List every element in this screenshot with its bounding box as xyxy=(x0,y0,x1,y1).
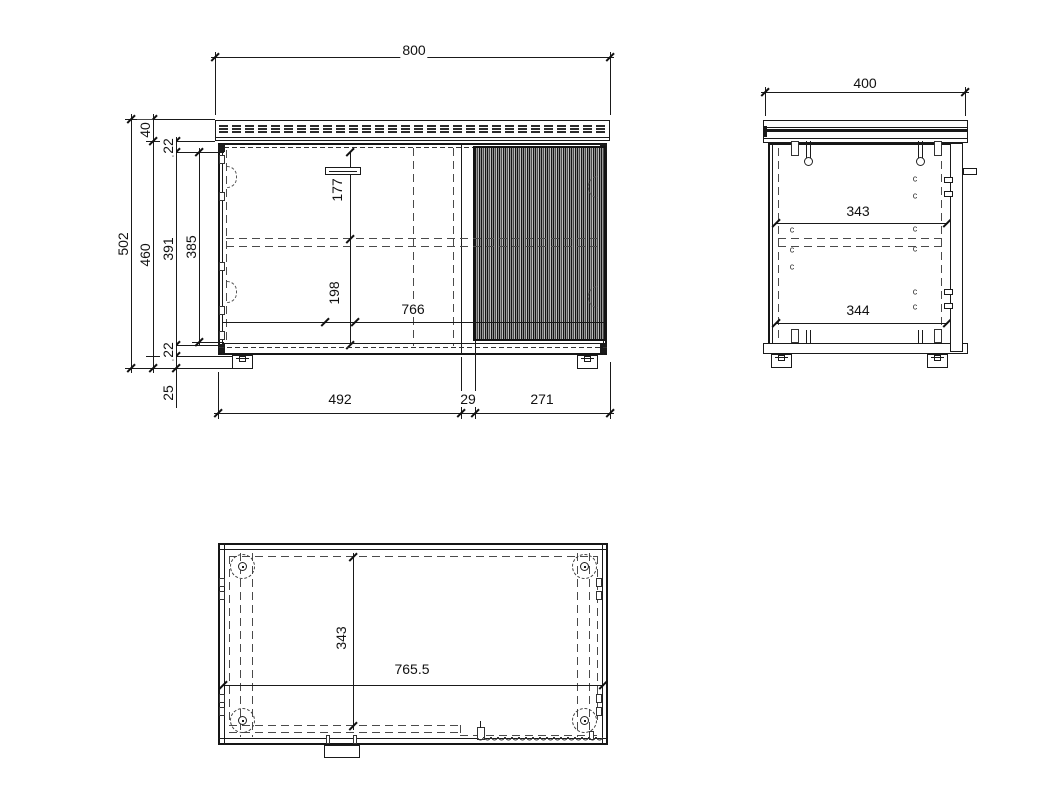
foot-center-dot xyxy=(242,566,244,568)
hidden-line xyxy=(941,148,942,350)
side-handle xyxy=(963,168,977,175)
shelf-hidden-line xyxy=(778,246,945,247)
shelf-hidden-line xyxy=(778,238,945,239)
bottom-panel-line xyxy=(222,343,605,344)
dim-line xyxy=(775,223,948,224)
door-handle-line xyxy=(329,171,357,172)
keyhole-circle xyxy=(804,157,813,166)
dim-label-plan-depth: 343 xyxy=(333,624,349,651)
fitting-pin xyxy=(480,721,481,728)
fitting-symbol xyxy=(353,735,357,744)
foot-pin-cross xyxy=(581,358,594,359)
foot-pin-cross xyxy=(931,357,944,358)
side-inner-edge xyxy=(772,143,773,353)
shelf-pin-mark: c xyxy=(913,175,918,184)
dim-line xyxy=(214,413,614,414)
plan-inner-edge xyxy=(218,549,608,550)
hinge-plate xyxy=(944,289,953,295)
dim-line xyxy=(353,553,354,730)
hidden-line xyxy=(229,556,230,725)
fitting-symbol xyxy=(219,192,225,201)
body-inner-edge xyxy=(222,143,223,355)
foot-pin-cross xyxy=(236,358,249,359)
dim-label-plan-width: 765.5 xyxy=(392,661,431,677)
fitting-symbol xyxy=(596,707,602,716)
dim-line xyxy=(131,114,132,373)
side-top-panel-band xyxy=(763,129,968,132)
fitting-symbol xyxy=(219,578,225,587)
hidden-line xyxy=(229,556,598,557)
top-panel-line xyxy=(215,137,610,138)
fluted-door xyxy=(473,146,606,341)
ext-line xyxy=(125,368,232,369)
hinge-plate xyxy=(944,303,953,309)
keyhole-stem xyxy=(810,141,811,159)
ext-line xyxy=(146,141,215,142)
shelf-pin-mark: c xyxy=(790,263,795,272)
foot-center-dot xyxy=(242,720,244,722)
back-tab xyxy=(324,745,360,758)
dim-label-depth: 400 xyxy=(851,75,878,91)
corner-block xyxy=(218,144,225,152)
fitting-symbol xyxy=(219,155,225,164)
dim-line xyxy=(222,322,605,323)
shelf-hidden-line xyxy=(226,238,602,239)
dim-label-top-panel: 40 xyxy=(137,120,153,140)
keyhole-stem xyxy=(922,141,923,159)
shelf-hidden-line xyxy=(226,246,602,247)
dim-label-overall-width: 800 xyxy=(400,42,427,58)
ext-line xyxy=(610,52,611,115)
ext-line xyxy=(475,341,476,419)
shelf-pin-mark: c xyxy=(913,245,918,254)
shelf-pin-mark: c xyxy=(790,246,795,255)
dim-label-mid-gap: 29 xyxy=(458,391,478,407)
panel-end-block xyxy=(763,126,767,137)
dim-label-foot-height: 25 xyxy=(160,383,176,403)
dim-line xyxy=(222,685,604,686)
fluted-edge-profile xyxy=(477,737,603,743)
fitting-symbol xyxy=(219,694,225,703)
dim-label-body-height: 460 xyxy=(137,241,153,268)
dim-label-left-section: 492 xyxy=(326,391,353,407)
dim-label-upper-depth: 343 xyxy=(844,203,871,219)
door-divider xyxy=(461,143,462,355)
hidden-line xyxy=(453,148,454,346)
top-panel-texture xyxy=(219,124,606,134)
dim-label-door-height: 385 xyxy=(183,233,199,260)
foot-center-dot xyxy=(584,566,586,568)
keyhole-slot xyxy=(791,329,799,343)
shelf-pin-mark: c xyxy=(913,303,918,312)
dim-label-top-inset: 22 xyxy=(160,136,176,156)
fitting-symbol xyxy=(219,331,225,340)
hidden-line xyxy=(252,553,253,737)
plan-inner-edge xyxy=(602,543,603,745)
foot-center-dot xyxy=(584,720,586,722)
ext-line xyxy=(215,52,216,115)
fitting-symbol xyxy=(326,735,330,744)
foot-pin xyxy=(934,355,941,361)
keyhole-circle xyxy=(916,157,925,166)
hidden-line xyxy=(229,725,460,726)
dim-label-inner-height: 391 xyxy=(160,235,176,262)
dim-label-right-section: 271 xyxy=(528,391,555,407)
side-top-panel-line xyxy=(763,138,968,139)
keyhole-slot xyxy=(791,141,799,156)
foot-pin xyxy=(239,356,246,362)
drawing-sheet: 800 766 177 xyxy=(0,0,1061,796)
dim-label-lower-depth: 344 xyxy=(844,302,871,318)
shelf-pin-mark: c xyxy=(913,225,918,234)
hinge-plate xyxy=(944,191,953,197)
dim-line xyxy=(199,148,200,346)
fitting-symbol xyxy=(219,707,225,716)
keyhole-slot xyxy=(934,329,942,343)
fitting-symbol xyxy=(596,694,602,703)
hidden-line xyxy=(229,732,460,733)
dim-label-bottom-inset: 22 xyxy=(160,340,176,360)
foot-pin xyxy=(584,356,591,362)
fitting-symbol xyxy=(219,306,225,315)
dim-line xyxy=(153,114,154,373)
side-body-outline xyxy=(768,143,962,353)
dim-label-overall-height: 502 xyxy=(115,230,131,257)
corner-block xyxy=(600,344,607,353)
keyhole-slot xyxy=(934,141,942,156)
foot-pin-cross xyxy=(775,357,788,358)
foot-pin xyxy=(778,355,785,361)
side-bottom-strip xyxy=(763,343,968,354)
shelf-pin-mark: c xyxy=(790,226,795,235)
door-profile xyxy=(950,143,963,352)
hidden-line xyxy=(219,347,607,348)
fitting-symbol xyxy=(596,578,602,587)
hinge-plate xyxy=(944,177,953,183)
dim-line xyxy=(775,323,948,324)
shelf-pin-mark: c xyxy=(913,288,918,297)
fitting-symbol xyxy=(219,591,225,600)
side-top-panel-line xyxy=(763,127,968,128)
dim-line xyxy=(761,92,969,93)
fitting-symbol xyxy=(219,262,225,271)
shelf-pin-mark: c xyxy=(913,192,918,201)
dim-label-inner-width: 766 xyxy=(399,301,426,317)
ext-line xyxy=(146,356,232,357)
dim-label-shelf-drop: 198 xyxy=(326,279,342,306)
plan-outline xyxy=(218,543,608,745)
fitting-symbol xyxy=(596,591,602,600)
measure-line xyxy=(350,152,351,345)
dim-label-handle-drop: 177 xyxy=(329,176,345,203)
